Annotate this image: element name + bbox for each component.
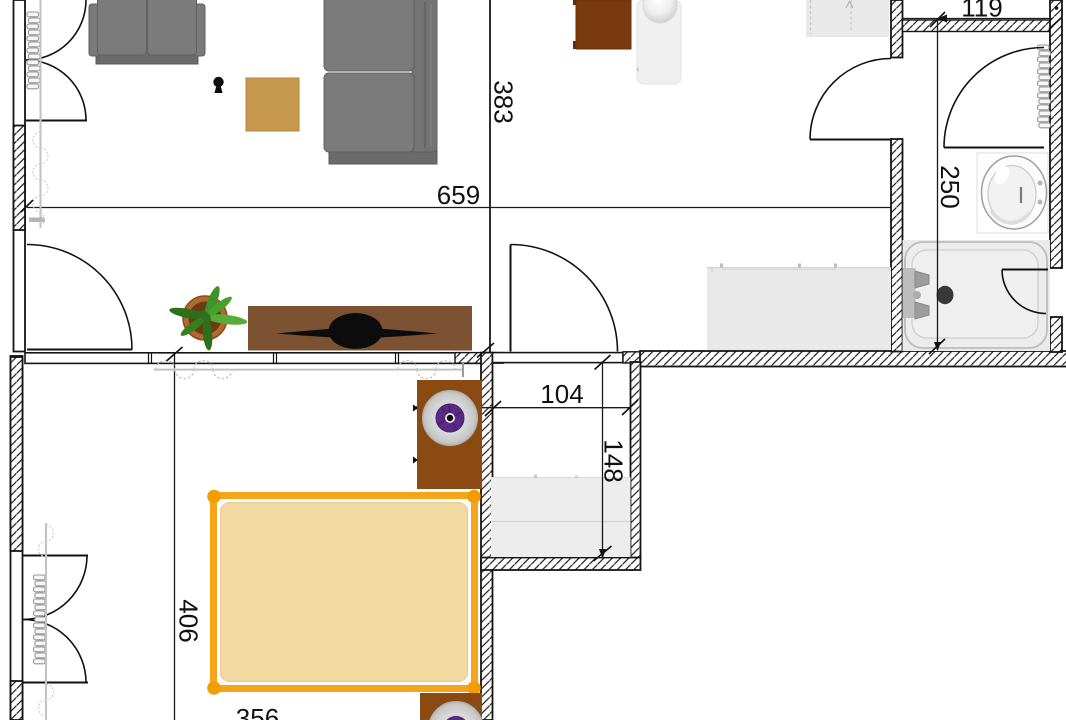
- svg-text:383: 383: [489, 80, 519, 123]
- svg-text:119: 119: [961, 0, 1002, 23]
- svg-text:148: 148: [599, 439, 629, 482]
- svg-text:104: 104: [540, 379, 583, 409]
- svg-text:250: 250: [935, 165, 965, 208]
- svg-text:356: 356: [236, 703, 279, 720]
- svg-text:659: 659: [437, 180, 480, 210]
- svg-text:406: 406: [174, 599, 204, 642]
